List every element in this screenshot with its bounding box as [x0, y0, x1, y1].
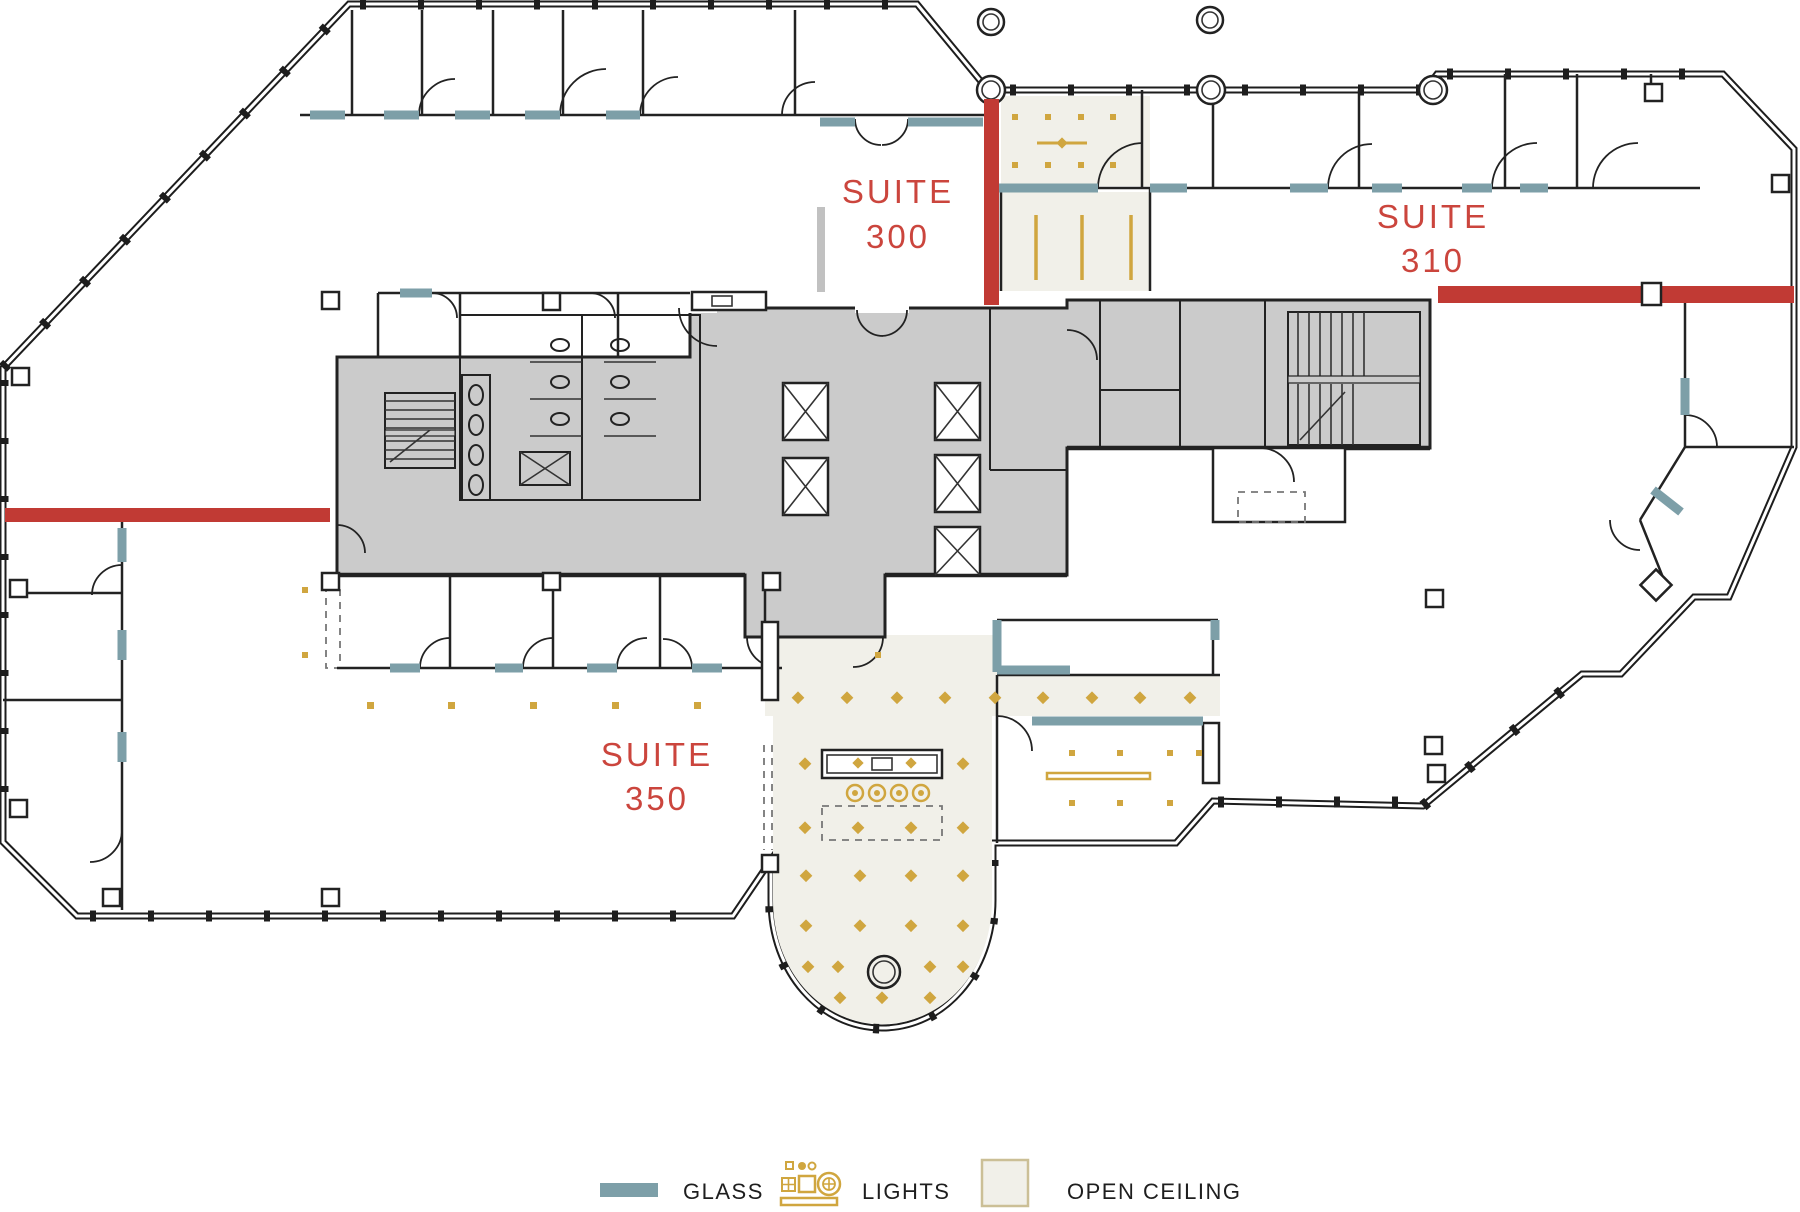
window-frame-west-2: [762, 855, 778, 872]
suite-300-line2[interactable]: 300: [866, 218, 930, 255]
suite-310-demising-wall-b: [1660, 286, 1794, 303]
core-north-door-opening: [855, 302, 909, 313]
storage-room: [1213, 448, 1345, 522]
suite-350-demising-wall: [5, 508, 330, 522]
legend-open-ceiling: OPEN CEILING: [982, 1160, 1241, 1206]
suite-310-line1[interactable]: SUITE: [1377, 198, 1489, 235]
window-frame-west: [762, 622, 778, 700]
wall-stub: [817, 207, 825, 292]
floor-plan-page: SUITE 300 SUITE 310 SUITE 350 GLASS: [0, 0, 1800, 1212]
legend-lights-label: LIGHTS: [862, 1179, 950, 1204]
suite-350-line2[interactable]: 350: [625, 780, 689, 817]
suite-310-demising-wall-a: [1438, 286, 1643, 303]
legend-glass: GLASS: [600, 1179, 764, 1204]
suite-350-line1[interactable]: SUITE: [601, 736, 713, 773]
glass-swatch: [600, 1183, 658, 1197]
window-frame-east: [1203, 723, 1219, 783]
open-ceiling-north: [1001, 96, 1150, 186]
suite-300-demising-wall: [984, 99, 999, 305]
lights-icon: [781, 1162, 840, 1205]
floor-plan-svg: SUITE 300 SUITE 310 SUITE 350 GLASS: [0, 0, 1800, 1212]
suite-300-line1[interactable]: SUITE: [842, 173, 954, 210]
legend-lights: LIGHTS: [781, 1162, 950, 1205]
reception-desk: [822, 750, 942, 778]
suite-310-line2[interactable]: 310: [1401, 242, 1465, 279]
legend-glass-label: GLASS: [683, 1179, 764, 1204]
open-ceiling-elevator-lobby-north: [1001, 192, 1150, 291]
column-in-red-wall: [1642, 283, 1661, 305]
elevator-bank-east: [935, 383, 980, 575]
coffee-counter: [692, 292, 766, 310]
legend-open-ceiling-label: OPEN CEILING: [1067, 1179, 1241, 1204]
open-ceiling-swatch: [982, 1160, 1028, 1206]
legend: GLASS LIGHTS OPEN CEILING: [600, 1160, 1241, 1206]
